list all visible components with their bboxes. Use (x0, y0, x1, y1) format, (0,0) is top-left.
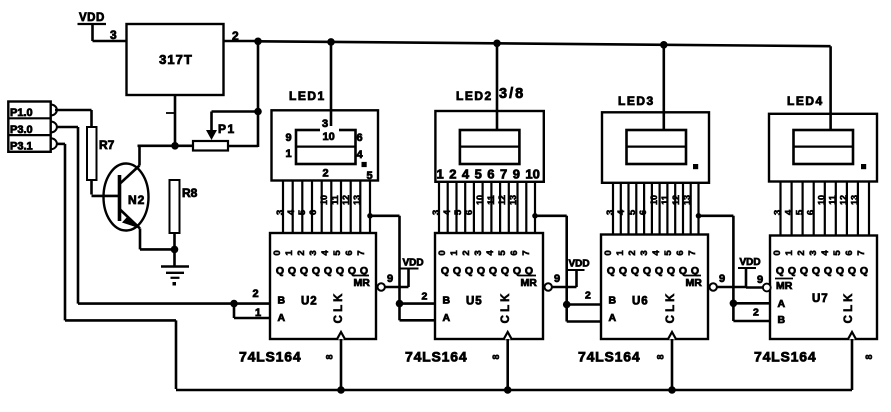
svg-text:8: 8 (864, 354, 874, 359)
svg-text:5: 5 (453, 209, 464, 215)
svg-text:1: 1 (449, 250, 460, 256)
svg-text:13: 13 (352, 195, 362, 205)
svg-text:P3.0: P3.0 (10, 124, 33, 136)
svg-text:3: 3 (473, 250, 484, 255)
svg-text:10: 10 (323, 131, 335, 143)
svg-text:MR: MR (686, 277, 703, 289)
svg-text:4: 4 (820, 250, 831, 256)
svg-text:2: 2 (323, 168, 329, 180)
svg-text:13: 13 (508, 195, 518, 205)
svg-text:A: A (609, 312, 617, 324)
svg-text:6: 6 (464, 210, 475, 215)
svg-text:5: 5 (832, 250, 843, 256)
svg-text:0: 0 (437, 250, 448, 255)
svg-text:Q: Q (800, 265, 808, 277)
svg-text:VDD: VDD (79, 12, 105, 24)
svg-text:0: 0 (603, 250, 614, 255)
svg-text:2: 2 (422, 291, 428, 303)
svg-text:B: B (443, 295, 451, 307)
svg-text:6: 6 (487, 167, 494, 182)
svg-text:1: 1 (784, 250, 795, 256)
svg-text:12: 12 (839, 195, 849, 205)
svg-text:2: 2 (296, 250, 307, 255)
svg-text:4: 4 (784, 209, 795, 215)
svg-text:5: 5 (332, 250, 343, 256)
svg-text:3: 3 (110, 28, 117, 42)
svg-text:0: 0 (272, 250, 283, 255)
svg-text:3: 3 (308, 250, 319, 255)
svg-text:2: 2 (461, 250, 472, 255)
svg-text:5: 5 (627, 209, 638, 215)
svg-text:U5: U5 (466, 296, 483, 308)
svg-text:5: 5 (663, 250, 674, 256)
svg-text:8: 8 (656, 354, 666, 359)
svg-text:Q: Q (619, 265, 627, 277)
svg-text:Q: Q (776, 265, 784, 277)
svg-text:8: 8 (325, 354, 335, 359)
svg-text:Q: Q (324, 265, 332, 277)
svg-text:LED3: LED3 (618, 94, 655, 108)
svg-text:B: B (778, 314, 786, 326)
svg-text:P1: P1 (218, 122, 236, 136)
svg-text:3: 3 (639, 250, 650, 255)
svg-text:Q: Q (489, 265, 497, 277)
svg-text:4: 4 (442, 209, 453, 215)
svg-text:LED4: LED4 (787, 94, 824, 108)
svg-text:0: 0 (772, 250, 783, 255)
svg-text:1: 1 (284, 250, 295, 256)
svg-text:12: 12 (497, 195, 507, 205)
svg-text:5: 5 (475, 167, 482, 182)
svg-text:C L K: C L K (843, 293, 855, 324)
svg-text:Q: Q (860, 265, 868, 277)
svg-text:4: 4 (357, 149, 364, 161)
svg-text:4: 4 (462, 167, 470, 182)
svg-text:5: 5 (367, 170, 373, 182)
svg-text:12: 12 (671, 195, 681, 205)
svg-text:P3.1: P3.1 (10, 141, 33, 153)
svg-text:Q: Q (812, 265, 820, 277)
svg-text:3: 3 (773, 210, 784, 215)
svg-text:6: 6 (357, 132, 363, 144)
svg-text:Q: Q (312, 265, 320, 277)
svg-text:Q: Q (288, 265, 296, 277)
svg-text:4: 4 (286, 209, 297, 215)
svg-text:C L K: C L K (333, 293, 345, 324)
svg-text:6: 6 (675, 250, 686, 255)
svg-text:2: 2 (627, 250, 638, 255)
svg-text:5: 5 (297, 209, 308, 215)
svg-text:2: 2 (585, 290, 591, 302)
svg-text:MR: MR (521, 277, 538, 289)
svg-text:C L K: C L K (665, 293, 677, 324)
svg-text:7: 7 (521, 250, 532, 255)
svg-text:10: 10 (817, 195, 827, 205)
svg-text:Q: Q (300, 265, 308, 277)
svg-text:9: 9 (757, 274, 763, 286)
svg-text:LED2: LED2 (456, 89, 493, 103)
svg-text:N2: N2 (128, 193, 145, 207)
svg-text:5: 5 (795, 209, 806, 215)
svg-text:11: 11 (486, 195, 496, 205)
svg-text:A: A (443, 312, 451, 324)
svg-text:6: 6 (308, 210, 319, 215)
svg-text:6: 6 (806, 210, 817, 215)
svg-text:A: A (278, 312, 286, 324)
svg-text:7: 7 (687, 250, 698, 255)
svg-text:8: 8 (491, 354, 501, 359)
svg-text:Q: Q (465, 265, 473, 277)
svg-text:Q: Q (276, 265, 284, 277)
svg-text:VDD: VDD (740, 257, 761, 268)
svg-text:6: 6 (638, 210, 649, 215)
svg-text:4: 4 (485, 250, 496, 256)
svg-text:Q: Q (788, 265, 796, 277)
svg-text:Q: Q (453, 265, 461, 277)
svg-text:10: 10 (525, 167, 539, 182)
svg-text:Q: Q (643, 265, 651, 277)
svg-text:Q: Q (631, 265, 639, 277)
svg-text:Q: Q (477, 265, 485, 277)
svg-text:MR: MR (776, 280, 793, 292)
svg-text:B: B (278, 295, 286, 307)
svg-text:3: 3 (275, 210, 286, 215)
svg-text:Q: Q (607, 265, 615, 277)
svg-text:6: 6 (344, 250, 355, 255)
svg-text:6: 6 (509, 250, 520, 255)
svg-text:2: 2 (253, 288, 259, 300)
svg-text:3/8: 3/8 (499, 86, 525, 102)
svg-text:Q: Q (501, 265, 509, 277)
svg-text:3: 3 (322, 118, 328, 130)
svg-text:LED1: LED1 (289, 89, 326, 103)
svg-text:U2: U2 (301, 296, 318, 308)
svg-text:9: 9 (286, 132, 292, 144)
svg-text:B: B (609, 295, 617, 307)
svg-text:9: 9 (513, 167, 520, 182)
svg-text:3: 3 (605, 210, 616, 215)
svg-text:9: 9 (387, 273, 393, 285)
svg-text:13: 13 (850, 195, 860, 205)
svg-text:U6: U6 (632, 296, 649, 308)
svg-text:3: 3 (808, 250, 819, 255)
svg-text:2: 2 (753, 307, 759, 319)
svg-text:2: 2 (449, 167, 456, 182)
svg-text:2: 2 (796, 250, 807, 255)
svg-text:74LS164: 74LS164 (754, 349, 816, 365)
svg-text:U7: U7 (812, 293, 829, 305)
svg-text:6: 6 (844, 250, 855, 255)
svg-text:9: 9 (719, 273, 725, 285)
svg-text:4: 4 (320, 250, 331, 256)
svg-text:11: 11 (660, 195, 670, 205)
svg-text:4: 4 (616, 209, 627, 215)
svg-text:A: A (778, 298, 786, 310)
svg-text:Q: Q (848, 265, 856, 277)
svg-text:12: 12 (341, 195, 351, 205)
svg-text:74LS164: 74LS164 (578, 349, 640, 365)
svg-text:1: 1 (255, 307, 261, 319)
svg-text:7: 7 (856, 250, 867, 255)
svg-text:Q: Q (667, 265, 675, 277)
svg-text:11: 11 (330, 195, 340, 205)
svg-text:9: 9 (554, 273, 560, 285)
svg-text:3: 3 (431, 210, 442, 215)
svg-text:Q: Q (836, 265, 844, 277)
svg-text:10: 10 (649, 195, 659, 205)
svg-text:C L K: C L K (500, 293, 512, 324)
svg-text:4: 4 (651, 250, 662, 256)
svg-text:Q: Q (655, 265, 663, 277)
svg-text:Q: Q (336, 265, 344, 277)
svg-text:317T: 317T (159, 52, 193, 67)
svg-text:7: 7 (500, 167, 507, 182)
svg-text:10: 10 (475, 195, 485, 205)
svg-text:MR: MR (354, 277, 371, 289)
svg-text:13: 13 (682, 195, 692, 205)
svg-text:11: 11 (828, 195, 838, 205)
svg-text:P1.0: P1.0 (10, 107, 33, 119)
svg-text:R8: R8 (182, 186, 198, 200)
svg-text:1: 1 (615, 250, 626, 256)
svg-text:Q: Q (441, 265, 449, 277)
svg-text:1: 1 (286, 148, 292, 160)
svg-text:5: 5 (497, 250, 508, 256)
svg-text:7: 7 (356, 250, 367, 255)
svg-text:Q: Q (824, 265, 832, 277)
svg-text:VDD: VDD (403, 258, 424, 269)
svg-text:VDD: VDD (569, 259, 590, 270)
svg-text:R7: R7 (99, 138, 115, 152)
svg-text:1: 1 (437, 167, 444, 182)
svg-text:74LS164: 74LS164 (405, 349, 467, 365)
svg-text:10: 10 (319, 195, 329, 205)
svg-text:74LS164: 74LS164 (239, 349, 301, 365)
